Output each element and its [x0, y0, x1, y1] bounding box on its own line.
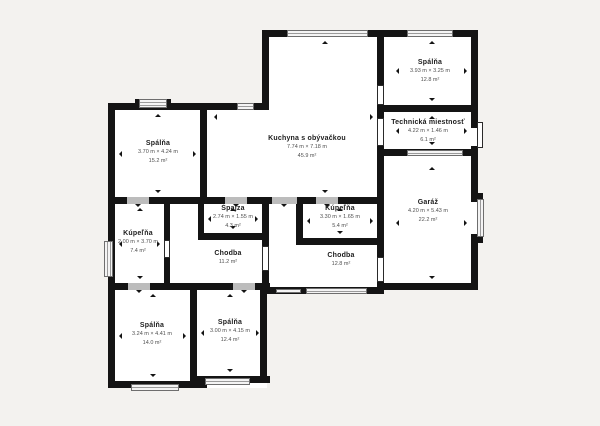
dimension-arrow-left [116, 151, 122, 157]
room-area: 4.3 m² [213, 223, 253, 230]
window [139, 99, 167, 108]
dimension-arrow-left [304, 218, 310, 224]
dimension-arrow-right [370, 218, 376, 224]
room-dims: 3.70 m × 4.24 m [138, 149, 178, 156]
door-leaf [262, 246, 269, 271]
dimension-arrow-up [429, 38, 435, 44]
room-name: Špajza [213, 204, 253, 213]
dimension-arrow-down [429, 276, 435, 282]
window [407, 150, 463, 156]
room-label-bedroom-bottom-middle: Spálňa 3.00 m × 4.15 m 12.4 m² [210, 318, 250, 344]
door-opening [233, 283, 255, 290]
dimension-arrow-down [150, 374, 156, 380]
room-label-bathroom-right: Kúpeľňa 3.30 m × 1.65 m 5.4 m² [320, 204, 360, 230]
wall [471, 30, 478, 128]
room-name: Spálňa [138, 139, 178, 148]
dimension-arrow-left [393, 220, 399, 226]
dimension-arrow-up [227, 291, 233, 297]
room-label-bathroom-left: Kúpeľňa 2.00 m × 3.70 m 7.4 m² [118, 229, 158, 255]
window [306, 288, 367, 294]
dimension-arrow-right [255, 216, 261, 222]
room-area: 14.0 m² [132, 340, 172, 347]
wall [190, 287, 197, 383]
room-label-hall-left: Chodba 11.2 m² [214, 249, 241, 267]
window [477, 199, 484, 237]
door-leaf [377, 257, 384, 282]
room-dims: 3.93 m × 3.25 m [410, 68, 450, 75]
room-name: Spálňa [210, 318, 250, 327]
door-opening [128, 283, 150, 290]
room-area: 7.4 m² [118, 248, 158, 255]
dimension-arrow-up [322, 38, 328, 44]
room-dims: 2.74 m × 1.55 m [213, 214, 253, 221]
room-name: Chodba [214, 249, 241, 258]
room-area: 15.2 m² [138, 158, 178, 165]
window [237, 103, 254, 110]
room-area: 45.9 m² [268, 153, 346, 160]
wall [384, 105, 471, 112]
wall [377, 283, 478, 290]
dimension-arrow-right [193, 151, 199, 157]
room-area: 11.2 m² [214, 260, 241, 267]
window [407, 30, 453, 37]
room-name: Chodba [327, 251, 354, 260]
wall [377, 30, 384, 294]
door-opening [127, 197, 149, 204]
dimension-arrow-down [155, 190, 161, 196]
dimension-arrow-left [116, 333, 122, 339]
window [287, 30, 368, 37]
dimension-arrow-right [464, 220, 470, 226]
wall [471, 236, 483, 243]
window [104, 241, 113, 277]
dimension-arrow-left [198, 330, 204, 336]
room-dims: 7.74 m × 7.18 m [268, 144, 346, 151]
dimension-arrow-up [150, 291, 156, 297]
room-area: 12.8 m² [327, 262, 354, 269]
dimension-arrow-down [227, 369, 233, 375]
room-dims: 2.00 m × 3.70 m [118, 239, 158, 246]
door-marker [241, 290, 247, 296]
door-marker [136, 290, 142, 296]
room-dims: 4.22 m × 1.46 m [391, 128, 465, 135]
room-area: 5.4 m² [320, 223, 360, 230]
room-area: 6.1 m² [391, 137, 465, 144]
door-marker [281, 204, 287, 210]
room-label-hall-right: Chodba 12.8 m² [327, 251, 354, 269]
room-dims: 3.30 m × 1.65 m [320, 214, 360, 221]
room-name: Kúpeľňa [118, 229, 158, 238]
dimension-arrow-left [211, 114, 217, 120]
room-dims: 4.20 m × 5.43 m [408, 208, 448, 215]
room-area: 12.8 m² [410, 77, 450, 84]
room-name: Kuchyna s obývačkou [268, 134, 346, 143]
room-name: Kúpeľňa [320, 204, 360, 213]
room-name: Garáž [408, 198, 448, 207]
dimension-arrow-left [393, 68, 399, 74]
room-area: 12.4 m² [210, 337, 250, 344]
dimension-arrow-down [322, 190, 328, 196]
room-label-pantry: Špajza 2.74 m × 1.55 m 4.3 m² [213, 204, 253, 230]
door-opening [272, 197, 297, 204]
room-dims: 3.24 m × 4.41 m [132, 331, 172, 338]
room-label-kitchen: Kuchyna s obývačkou 7.74 m × 7.18 m 45.9… [268, 134, 346, 160]
room-area: 22.2 m² [408, 217, 448, 224]
room-label-garage: Garáž 4.20 m × 5.43 m 22.2 m² [408, 198, 448, 224]
room-label-bedroom-top-left: Spálňa 3.70 m × 4.24 m 15.2 m² [138, 139, 178, 165]
wall [296, 238, 384, 245]
room-label-technical-room: Technická miestnosť 4.22 m × 1.46 m 6.1 … [391, 118, 465, 144]
window [276, 289, 301, 293]
window [131, 384, 179, 391]
room-label-bedroom-bottom-left: Spálňa 3.24 m × 4.41 m 14.0 m² [132, 321, 172, 347]
floor-plan: Kuchyna s obývačkou 7.74 m × 7.18 m 45.9… [0, 0, 600, 426]
dimension-arrow-down [337, 231, 343, 237]
wall [262, 197, 269, 290]
dimension-arrow-up [155, 111, 161, 117]
dimension-arrow-down [137, 276, 143, 282]
wall [198, 233, 269, 240]
room-dims: 3.00 m × 4.15 m [210, 328, 250, 335]
dimension-arrow-right [256, 330, 262, 336]
room-label-bedroom-top-right: Spálňa 3.93 m × 3.25 m 12.8 m² [410, 58, 450, 84]
dimension-arrow-left [205, 216, 211, 222]
wall [262, 30, 269, 110]
window [205, 378, 250, 385]
room-floor [265, 33, 384, 290]
dimension-arrow-right [464, 68, 470, 74]
dimension-arrow-up [429, 164, 435, 170]
room-name: Technická miestnosť [391, 118, 465, 127]
wall [200, 103, 207, 204]
door-leaf [377, 118, 384, 146]
dimension-arrow-right [464, 128, 470, 134]
dimension-arrow-down [429, 98, 435, 104]
dimension-arrow-right [183, 333, 189, 339]
door-leaf [377, 85, 384, 105]
door-marker [135, 204, 141, 210]
door-leaf [477, 122, 483, 148]
dimension-arrow-right [370, 114, 376, 120]
room-name: Spálňa [410, 58, 450, 67]
room-name: Spálňa [132, 321, 172, 330]
door-leaf [164, 240, 170, 258]
